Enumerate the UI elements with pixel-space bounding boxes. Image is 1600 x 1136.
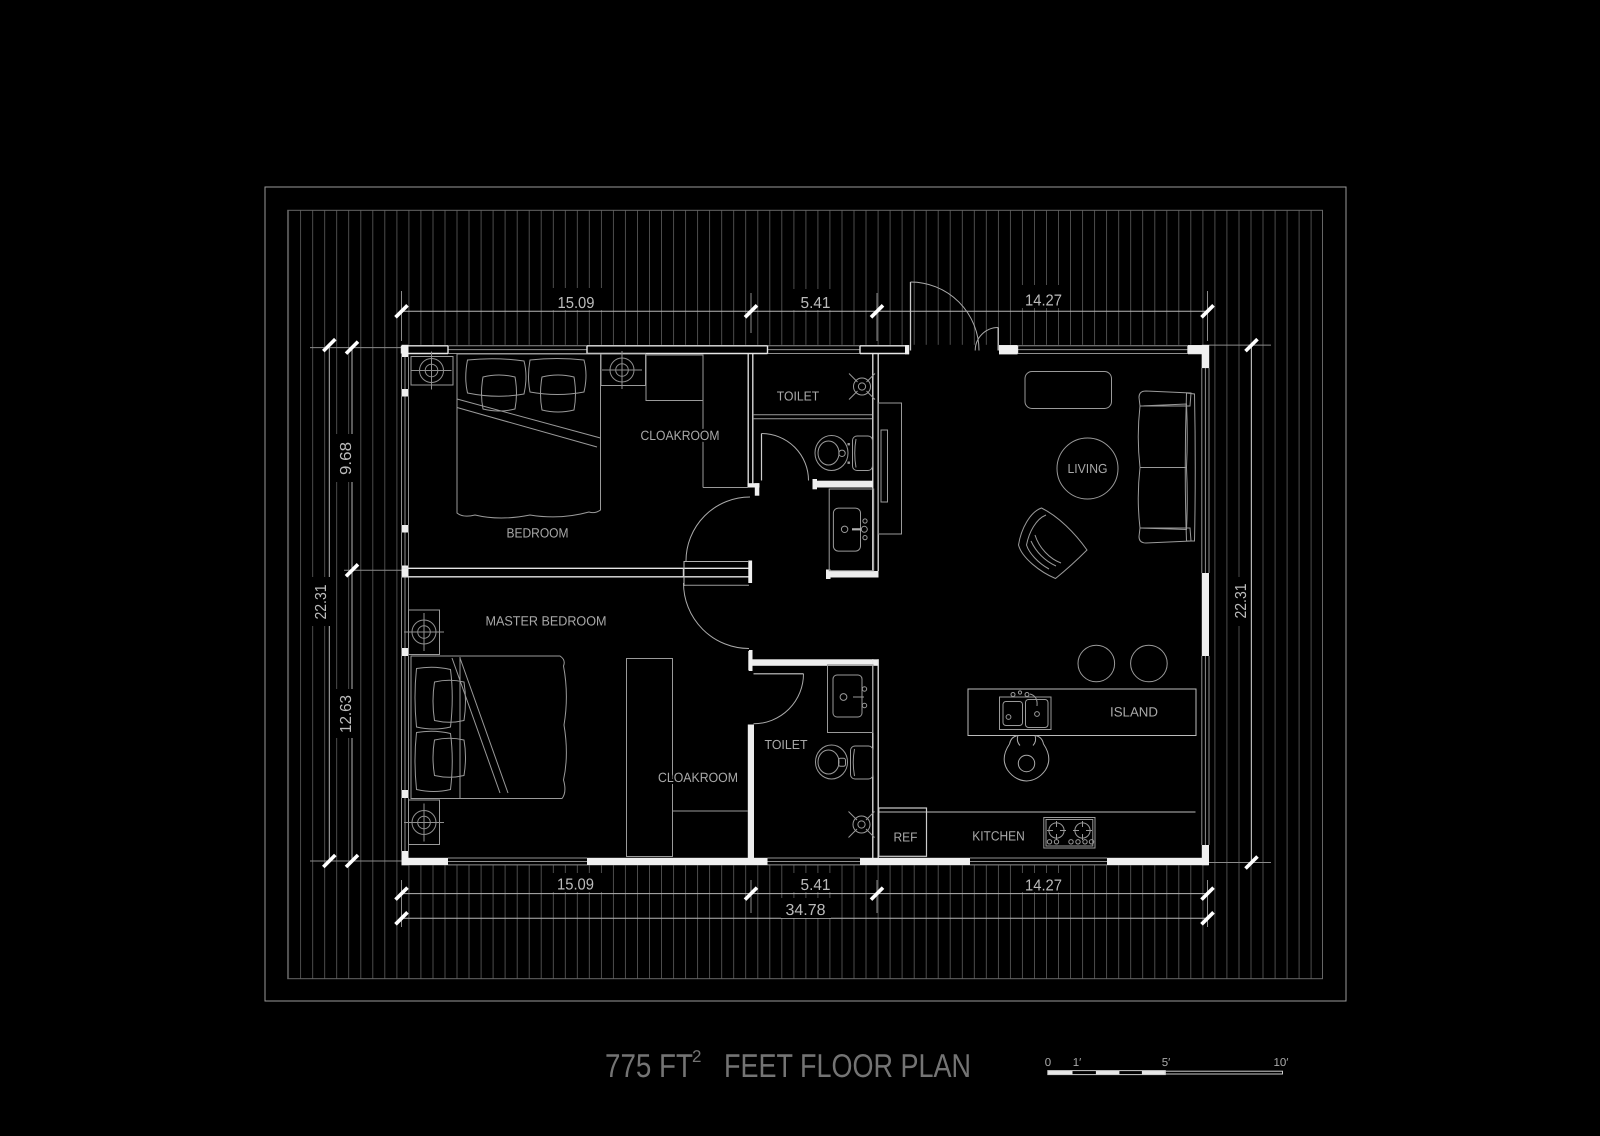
svg-text:5.41: 5.41	[801, 877, 831, 894]
svg-text:5.41: 5.41	[801, 295, 831, 312]
svg-text:2: 2	[692, 1047, 701, 1066]
svg-text:14.27: 14.27	[1025, 878, 1062, 895]
svg-text:TOILET: TOILET	[777, 389, 820, 404]
svg-text:9.68: 9.68	[338, 442, 355, 475]
svg-text:775 FT: 775 FT	[605, 1047, 693, 1084]
svg-text:15.09: 15.09	[557, 877, 594, 894]
svg-text:CLOAKROOM: CLOAKROOM	[658, 770, 738, 785]
svg-text:1′: 1′	[1073, 1057, 1082, 1069]
svg-text:14.27: 14.27	[1025, 293, 1062, 310]
svg-text:10′: 10′	[1274, 1057, 1289, 1069]
svg-text:12.63: 12.63	[338, 695, 355, 733]
svg-text:FEET FLOOR PLAN: FEET FLOOR PLAN	[724, 1047, 971, 1084]
svg-text:0: 0	[1045, 1057, 1051, 1069]
svg-text:MASTER BEDROOM: MASTER BEDROOM	[486, 614, 607, 629]
svg-text:34.78: 34.78	[786, 902, 826, 919]
svg-text:TOILET: TOILET	[765, 737, 808, 752]
svg-text:LIVING: LIVING	[1068, 461, 1108, 476]
svg-text:BEDROOM: BEDROOM	[507, 526, 569, 541]
svg-text:15.09: 15.09	[558, 295, 595, 312]
svg-text:5′: 5′	[1162, 1057, 1171, 1069]
svg-text:CLOAKROOM: CLOAKROOM	[641, 428, 720, 443]
svg-text:KITCHEN: KITCHEN	[972, 829, 1025, 844]
svg-text:22.31: 22.31	[1233, 583, 1250, 618]
svg-text:REF: REF	[894, 830, 918, 845]
svg-text:22.31: 22.31	[313, 584, 330, 619]
svg-text:ISLAND: ISLAND	[1110, 705, 1158, 720]
